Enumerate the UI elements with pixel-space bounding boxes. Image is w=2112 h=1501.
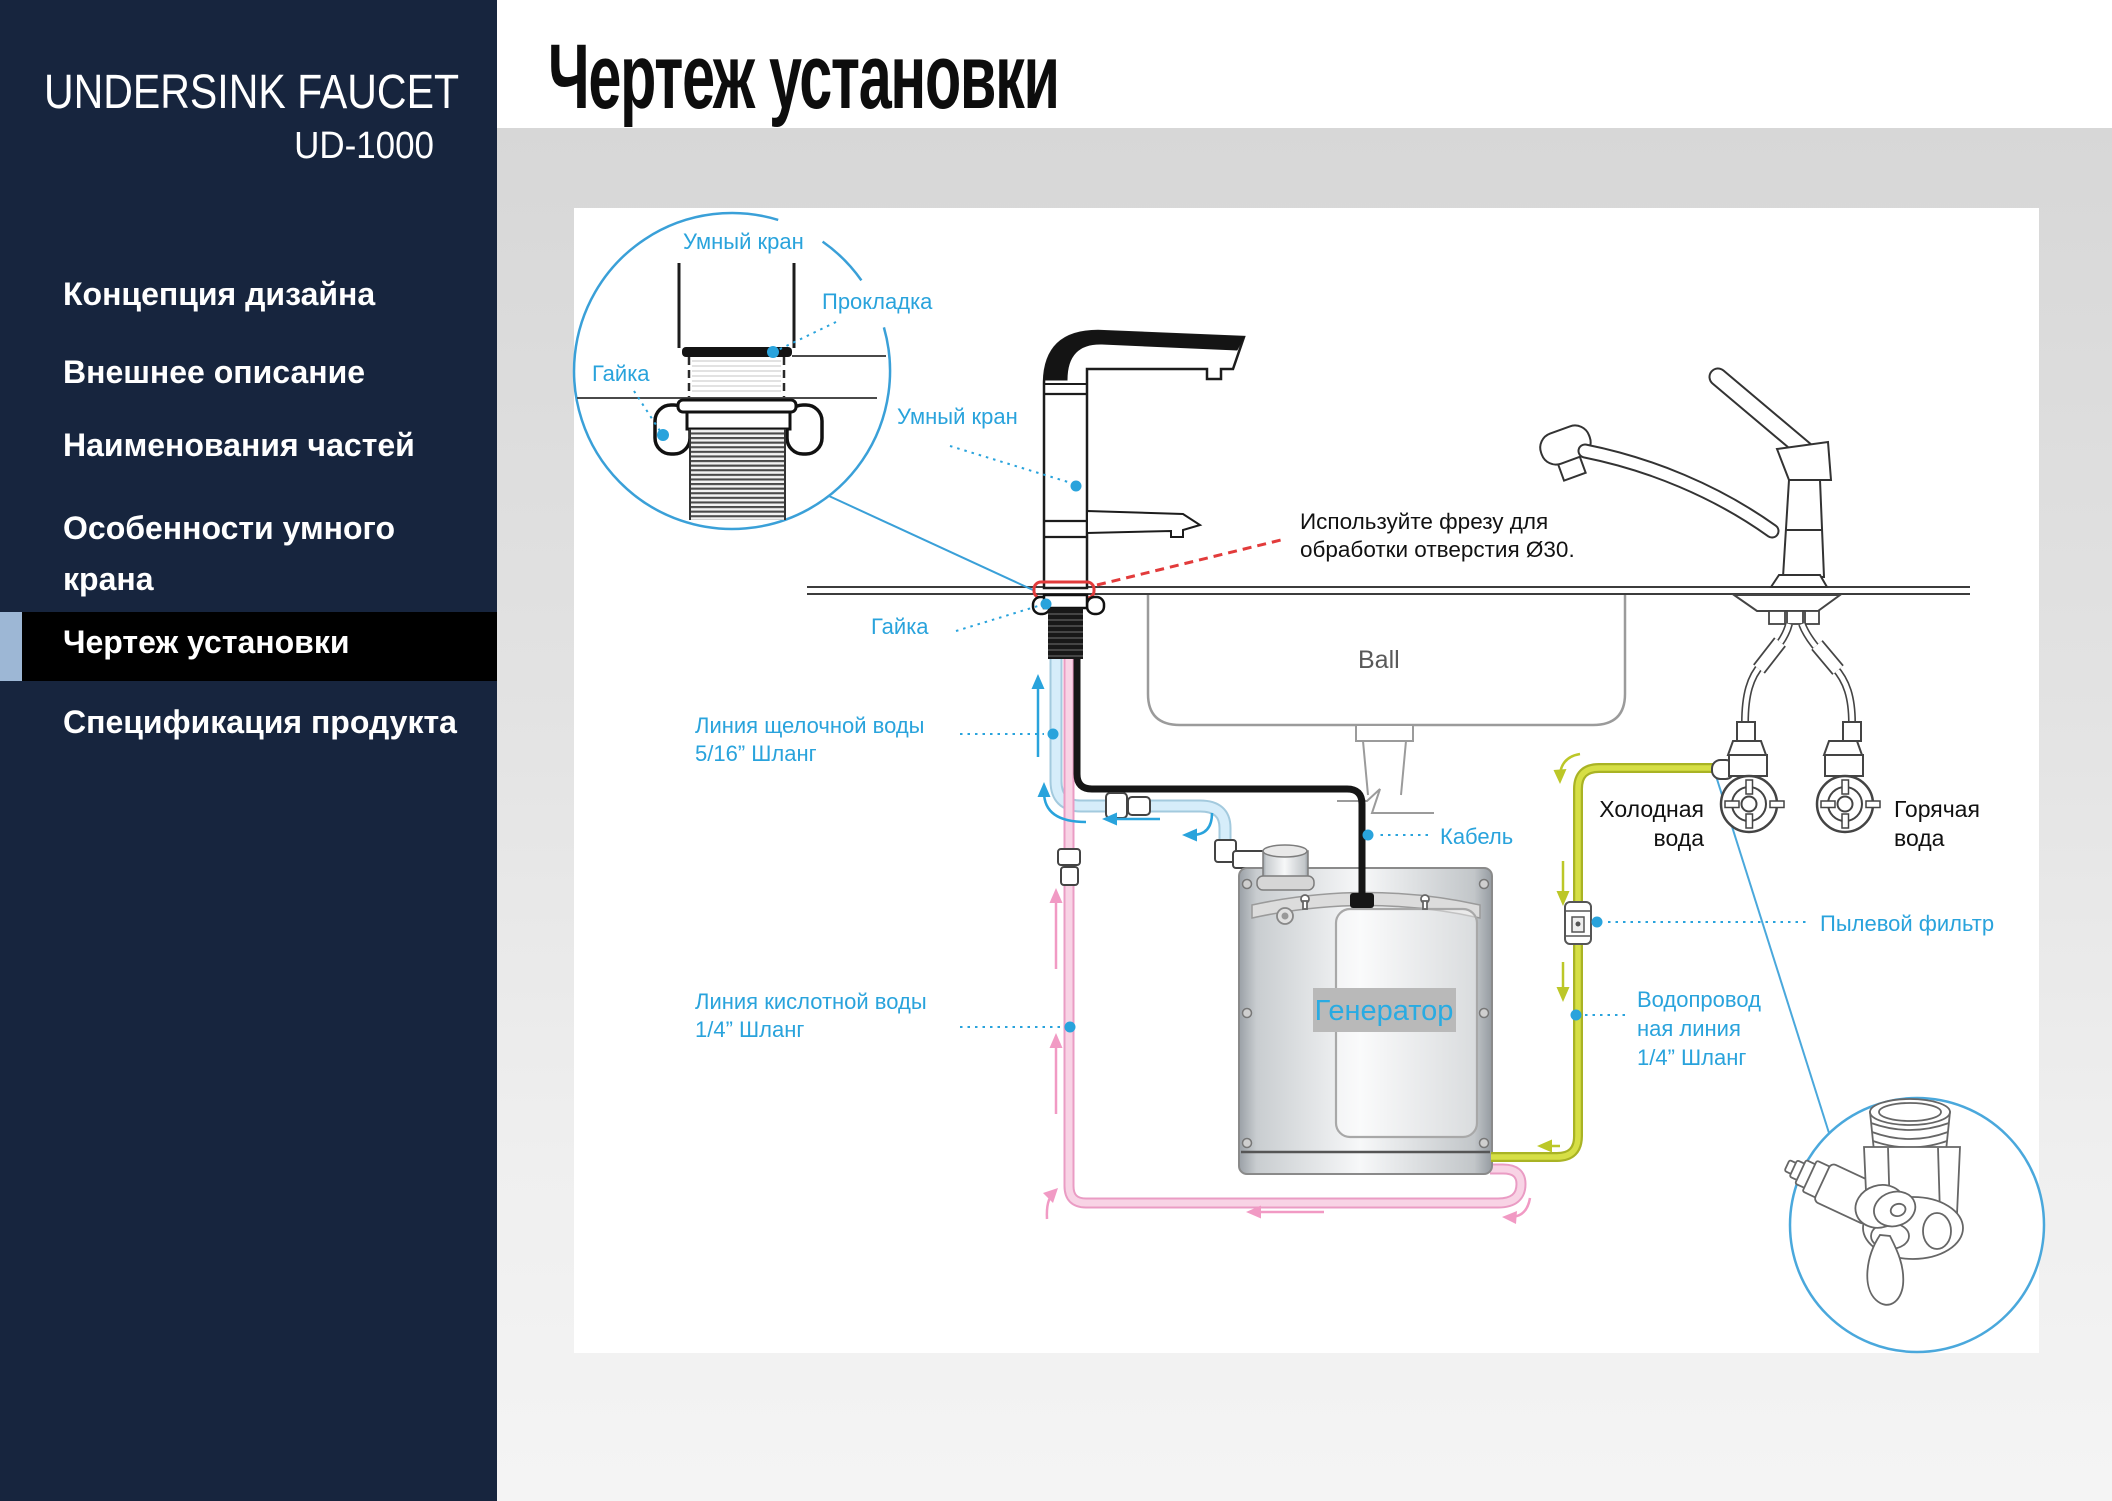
svg-text:Пылевой фильтр: Пылевой фильтр bbox=[1820, 911, 1994, 936]
svg-text:1/4” Шланг: 1/4” Шланг bbox=[695, 1017, 804, 1042]
svg-text:Ball: Ball bbox=[1358, 646, 1400, 674]
svg-text:вода: вода bbox=[1654, 825, 1705, 851]
svg-text:Используйте фрезу для: Используйте фрезу для bbox=[1300, 509, 1548, 534]
svg-text:Умный кран: Умный кран bbox=[897, 404, 1018, 429]
svg-text:Горячая: Горячая bbox=[1894, 796, 1980, 822]
svg-text:ная линия: ная линия bbox=[1637, 1016, 1741, 1041]
svg-text:Холодная: Холодная bbox=[1599, 796, 1704, 822]
svg-text:Гайка: Гайка bbox=[871, 614, 929, 639]
svg-text:вода: вода bbox=[1894, 825, 1945, 851]
svg-text:Линия щелочной воды: Линия щелочной воды bbox=[695, 713, 924, 738]
svg-text:Кабель: Кабель bbox=[1440, 824, 1513, 849]
svg-text:5/16” Шланг: 5/16” Шланг bbox=[695, 741, 817, 766]
svg-text:Водопровод: Водопровод bbox=[1637, 987, 1761, 1012]
svg-text:Генератор: Генератор bbox=[1315, 995, 1454, 1027]
svg-text:1/4” Шланг: 1/4” Шланг bbox=[1637, 1045, 1746, 1070]
svg-text:Гайка: Гайка bbox=[592, 361, 650, 386]
svg-text:Умный кран: Умный кран bbox=[683, 229, 804, 254]
svg-text:Прокладка: Прокладка bbox=[822, 289, 933, 314]
svg-text:Линия кислотной воды: Линия кислотной воды bbox=[695, 989, 927, 1014]
svg-text:обработки отверстия Ø30.: обработки отверстия Ø30. bbox=[1300, 537, 1575, 562]
